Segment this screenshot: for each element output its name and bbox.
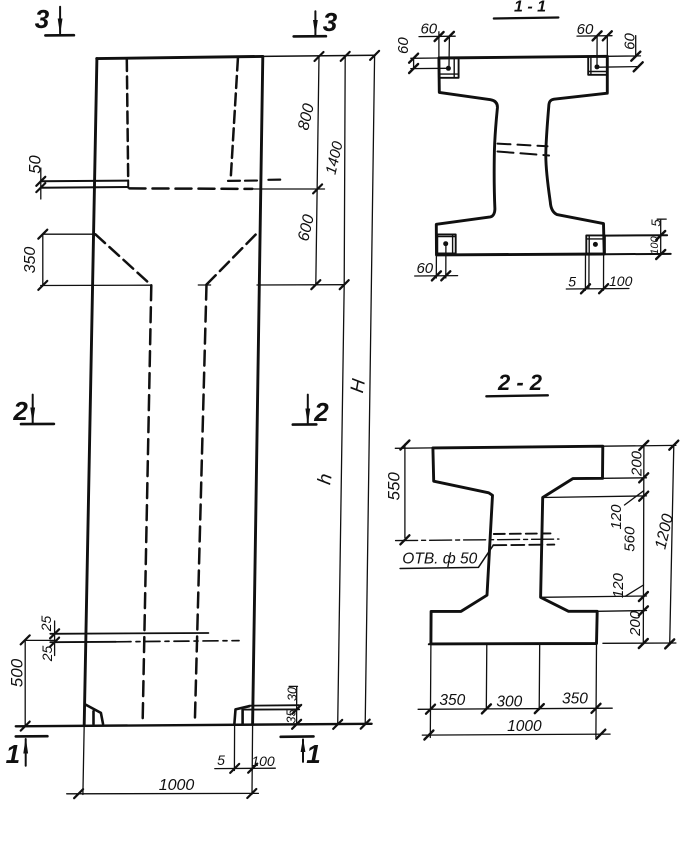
svg-text:25: 25: [38, 616, 54, 633]
svg-text:200: 200: [628, 450, 645, 477]
svg-text:350: 350: [22, 247, 39, 274]
svg-text:5: 5: [568, 274, 576, 290]
svg-text:1: 1: [6, 739, 20, 769]
svg-text:120: 120: [608, 504, 625, 530]
svg-text:2 - 2: 2 - 2: [497, 370, 543, 395]
svg-text:5: 5: [649, 219, 664, 227]
svg-text:1200: 1200: [652, 512, 677, 551]
svg-text:H: H: [347, 377, 370, 394]
svg-text:100: 100: [609, 273, 633, 289]
svg-text:600: 600: [295, 213, 318, 243]
svg-text:60: 60: [621, 33, 638, 50]
svg-text:800: 800: [295, 102, 318, 132]
svg-text:50: 50: [27, 155, 45, 174]
svg-text:35: 35: [285, 710, 299, 724]
svg-text:1000: 1000: [507, 718, 542, 735]
svg-text:200: 200: [627, 610, 644, 637]
svg-text:3: 3: [35, 4, 50, 34]
svg-text:350: 350: [562, 691, 588, 708]
svg-text:1000: 1000: [159, 777, 195, 794]
svg-text:60: 60: [416, 260, 433, 277]
svg-text:350: 350: [439, 692, 465, 709]
svg-text:60: 60: [420, 21, 437, 38]
svg-text:1: 1: [306, 739, 320, 769]
svg-text:550: 550: [385, 472, 404, 501]
svg-text:2: 2: [313, 397, 329, 427]
svg-text:1400: 1400: [323, 139, 347, 176]
svg-text:60: 60: [577, 21, 594, 38]
svg-text:25: 25: [39, 646, 55, 663]
svg-text:100: 100: [251, 753, 275, 769]
svg-text:3: 3: [323, 7, 338, 37]
svg-text:60: 60: [395, 37, 412, 54]
svg-text:500: 500: [8, 658, 27, 687]
svg-text:300: 300: [496, 694, 522, 711]
svg-text:560: 560: [622, 526, 639, 552]
svg-text:100: 100: [649, 235, 661, 254]
svg-text:30: 30: [286, 687, 300, 701]
svg-text:2: 2: [12, 396, 28, 426]
svg-text:h: h: [314, 472, 337, 486]
svg-text:120: 120: [610, 572, 627, 598]
svg-text:ОТВ. ф 50: ОТВ. ф 50: [402, 551, 477, 568]
svg-text:1 - 1: 1 - 1: [514, 0, 546, 16]
svg-text:5: 5: [217, 752, 225, 768]
